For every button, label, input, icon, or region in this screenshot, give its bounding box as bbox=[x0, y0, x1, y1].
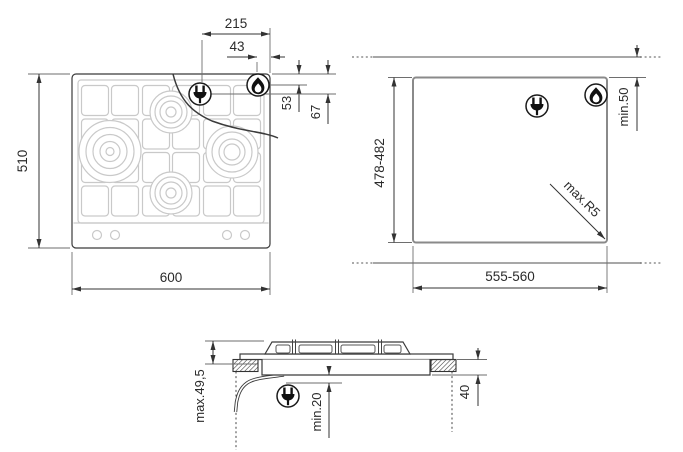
burner-bottom-middle bbox=[150, 172, 192, 214]
dim-43: 43 bbox=[227, 39, 285, 72]
dim-label-215: 215 bbox=[225, 16, 248, 31]
burner-large bbox=[79, 121, 141, 183]
dim-rear-clearance: min.50 bbox=[609, 45, 646, 131]
plug-icon bbox=[189, 83, 211, 105]
dim-label-recess-depth: 40 bbox=[457, 385, 472, 399]
hob-body-section bbox=[262, 360, 430, 376]
dim-label-min-clearance: min.20 bbox=[309, 392, 324, 431]
burner-right bbox=[206, 126, 258, 178]
flame-icon bbox=[585, 84, 607, 106]
cutout-view: 478-482 555-560 min.50 max.R5 bbox=[352, 45, 661, 293]
side-view: max.49,5 min.20 40 bbox=[192, 340, 487, 451]
dim-label-67: 67 bbox=[308, 105, 323, 119]
dim-label-43: 43 bbox=[229, 39, 244, 54]
dim-width-600: 600 bbox=[72, 252, 270, 295]
hob-rim-section bbox=[240, 354, 453, 360]
flame-icon bbox=[247, 74, 269, 96]
dim-label-cutout-width: 555-560 bbox=[485, 269, 535, 284]
worktop-section-right bbox=[431, 360, 456, 372]
dim-max-height: max.49,5 bbox=[192, 341, 264, 423]
plug-icon bbox=[277, 385, 299, 407]
burner-top-middle bbox=[150, 91, 192, 133]
dim-label-53: 53 bbox=[279, 96, 294, 110]
dim-depth-510: 510 bbox=[15, 74, 70, 248]
worktop-section-left bbox=[233, 360, 258, 372]
dim-cutout-width: 555-560 bbox=[413, 246, 607, 293]
plug-icon bbox=[526, 95, 548, 117]
dim-label-width: 600 bbox=[160, 270, 183, 285]
dim-label-depth: 510 bbox=[15, 150, 30, 173]
installation-diagram: 510 600 215 43 53 bbox=[0, 0, 683, 452]
cutout-outline bbox=[413, 78, 607, 243]
dim-label-cutout-depth: 478-482 bbox=[372, 138, 387, 188]
dim-label-max-height: max.49,5 bbox=[192, 369, 207, 422]
diagram-canvas: 510 600 215 43 53 bbox=[0, 0, 683, 452]
dim-53: 53 bbox=[270, 60, 336, 112]
top-view: 510 600 215 43 53 bbox=[15, 16, 336, 295]
dim-cutout-depth: 478-482 bbox=[372, 78, 412, 243]
dim-label-rear-clearance: min.50 bbox=[616, 87, 631, 126]
